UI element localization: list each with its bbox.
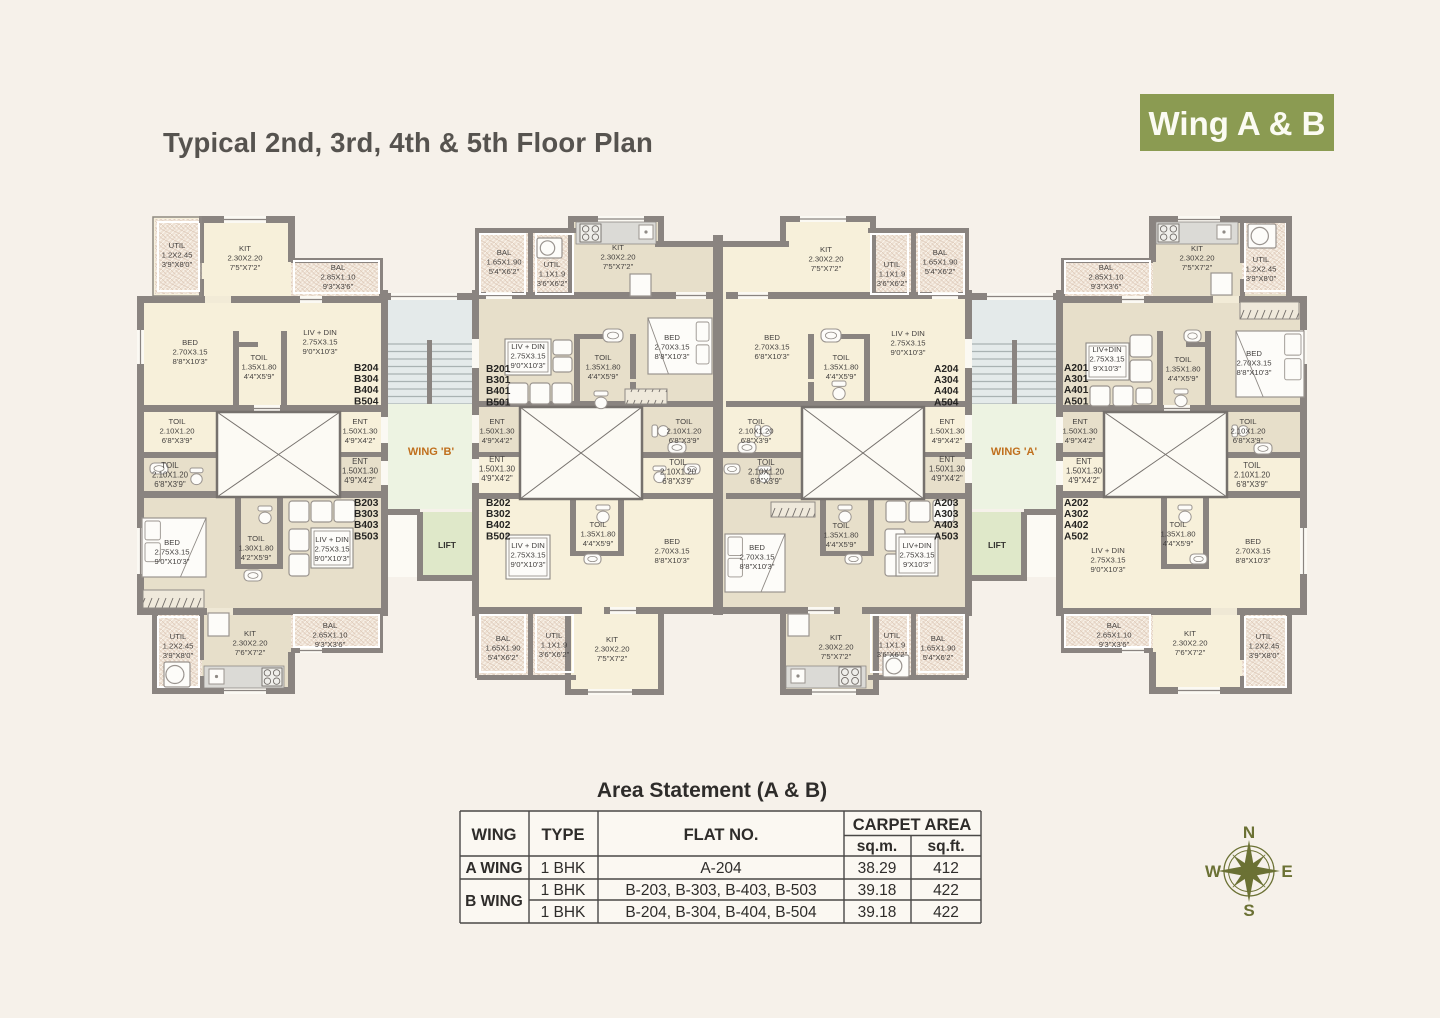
svg-text:B-203, B-303, B-403, B-503: B-203, B-303, B-403, B-503 <box>625 882 816 899</box>
svg-text:Wing A & B: Wing A & B <box>1149 105 1326 142</box>
svg-text:N: N <box>1243 823 1255 842</box>
svg-text:LIV + DIN2.75X3.159'0"X10'3": LIV + DIN2.75X3.159'0"X10'3" <box>510 342 545 370</box>
svg-text:422: 422 <box>933 882 959 899</box>
svg-text:B201B301B401B501: B201B301B401B501 <box>486 364 511 408</box>
svg-text:TYPE: TYPE <box>541 826 584 844</box>
svg-text:S: S <box>1243 901 1254 920</box>
svg-text:LIV + DIN2.75X3.159'0"X10'3": LIV + DIN2.75X3.159'0"X10'3" <box>510 541 545 569</box>
svg-text:38.29: 38.29 <box>858 860 897 877</box>
svg-text:W: W <box>1205 862 1222 881</box>
svg-text:B203B303B403B503: B203B303B403B503 <box>354 498 379 542</box>
svg-text:LIV + DIN2.75X3.159'0"X10'3": LIV + DIN2.75X3.159'0"X10'3" <box>314 535 349 563</box>
svg-text:1 BHK: 1 BHK <box>541 904 586 921</box>
svg-text:FLAT NO.: FLAT NO. <box>684 826 759 844</box>
svg-text:A203A303A403A503: A203A303A403A503 <box>934 498 959 542</box>
svg-text:LIV+DIN2.75X3.159'X10'3": LIV+DIN2.75X3.159'X10'3" <box>1089 345 1124 373</box>
svg-text:Typical 2nd, 3rd, 4th & 5th Fl: Typical 2nd, 3rd, 4th & 5th Floor Plan <box>163 127 653 158</box>
svg-text:CARPET AREA: CARPET AREA <box>853 816 972 834</box>
svg-text:WING 'A': WING 'A' <box>991 446 1038 458</box>
svg-text:B204B304B404B504: B204B304B404B504 <box>354 363 379 407</box>
svg-text:Area Statement (A & B): Area Statement (A & B) <box>597 779 827 802</box>
svg-text:1 BHK: 1 BHK <box>541 860 586 877</box>
svg-text:A201A301A401A501: A201A301A401A501 <box>1064 363 1089 407</box>
svg-text:B-204, B-304, B-404, B-504: B-204, B-304, B-404, B-504 <box>625 904 817 921</box>
svg-text:sq.m.: sq.m. <box>857 838 897 855</box>
svg-text:sq.ft.: sq.ft. <box>927 838 964 855</box>
svg-text:A204A304A404A504: A204A304A404A504 <box>934 364 959 408</box>
svg-text:LIV + DIN2.75X3.159'0"X10'3": LIV + DIN2.75X3.159'0"X10'3" <box>302 328 337 356</box>
svg-text:39.18: 39.18 <box>858 882 897 899</box>
svg-text:WING 'B': WING 'B' <box>408 446 455 458</box>
svg-text:E: E <box>1281 862 1292 881</box>
svg-text:A-204: A-204 <box>700 860 742 877</box>
svg-text:39.18: 39.18 <box>858 904 897 921</box>
svg-text:422: 422 <box>933 904 959 921</box>
svg-text:A WING: A WING <box>465 860 522 877</box>
svg-text:WING: WING <box>472 826 517 844</box>
svg-text:A202A302A402A502: A202A302A402A502 <box>1064 498 1089 542</box>
svg-text:LIFT: LIFT <box>988 540 1007 550</box>
svg-text:LIV + DIN2.75X3.159'0"X10'3": LIV + DIN2.75X3.159'0"X10'3" <box>1090 546 1125 574</box>
svg-text:1 BHK: 1 BHK <box>541 882 586 899</box>
svg-text:LIFT: LIFT <box>438 540 457 550</box>
svg-text:LIV + DIN2.75X3.159'0"X10'3": LIV + DIN2.75X3.159'0"X10'3" <box>890 329 925 357</box>
svg-text:B202B302B402B502: B202B302B402B502 <box>486 498 511 542</box>
svg-text:B WING: B WING <box>465 893 523 910</box>
svg-text:LIV+DIN2.75X3.159'X10'3": LIV+DIN2.75X3.159'X10'3" <box>899 541 934 569</box>
svg-text:412: 412 <box>933 860 959 877</box>
